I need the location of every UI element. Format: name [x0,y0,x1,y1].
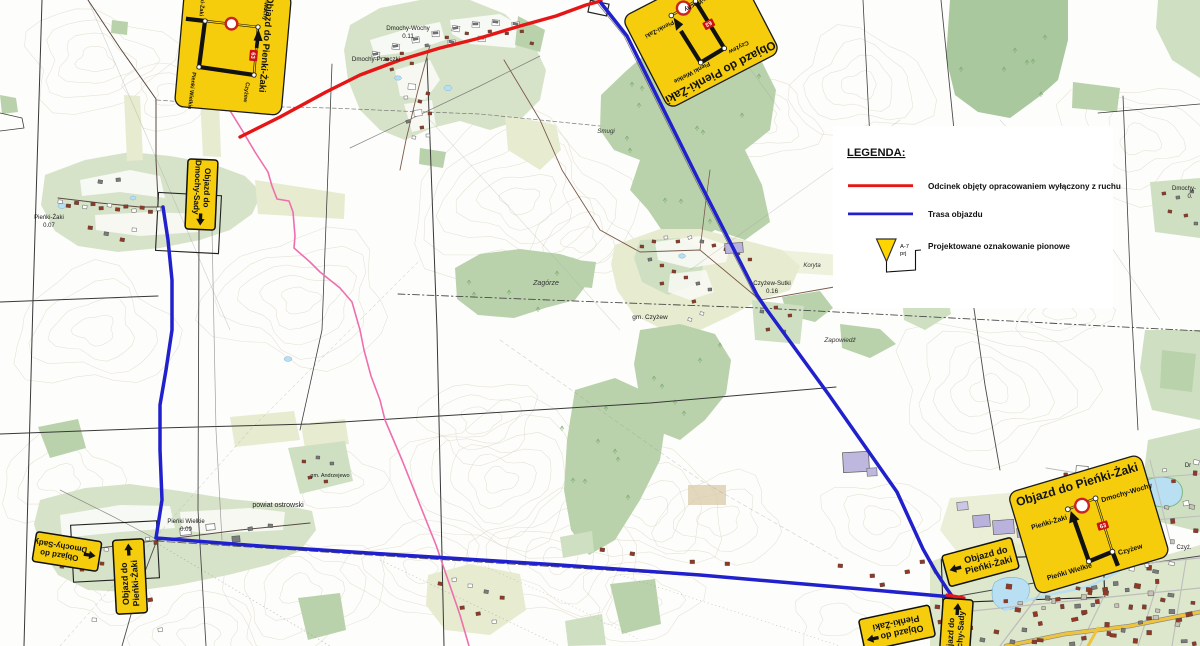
svg-text:Zapowiedź: Zapowiedź [823,337,856,344]
svg-text:Dmochy-Wochy: Dmochy-Wochy [386,25,430,32]
svg-text:Projektowane oznakowanie piono: Projektowane oznakowanie pionowe [928,242,1070,251]
svg-text:gm. Czyżew: gm. Czyżew [632,314,668,321]
svg-text:A-7: A-7 [900,244,909,250]
svg-text:Czyżew-Sutki: Czyżew-Sutki [753,280,790,287]
svg-text:Zagórze: Zagórze [532,280,559,287]
svg-text:0.16: 0.16 [766,288,779,295]
svg-text:Dr: Dr [1185,463,1191,469]
svg-text:0.09: 0.09 [180,527,192,533]
svg-text:Koryta: Koryta [803,263,821,269]
svg-text:prj: prj [900,251,906,257]
svg-text:0.: 0. [1187,194,1192,200]
svg-text:0.11: 0.11 [402,33,414,40]
svg-text:Trasa objazdu: Trasa objazdu [928,210,983,219]
svg-text:powiat ostrowski: powiat ostrowski [252,502,304,509]
svg-text:Czyż.: Czyż. [1177,545,1192,551]
svg-text:0.07: 0.07 [43,223,55,229]
svg-text:Pieńki Wielkie: Pieńki Wielkie [167,519,205,525]
svg-text:Dmochy-: Dmochy- [1172,186,1196,192]
svg-text:LEGENDA:: LEGENDA: [847,147,905,159]
svg-text:Odcinek objęty opracowaniem wy: Odcinek objęty opracowaniem wyłączony z … [928,182,1121,191]
svg-text:Pieńki-Żaki: Pieńki-Żaki [34,214,64,221]
svg-text:Dmochy-Przeczki: Dmochy-Przeczki [352,56,400,63]
svg-text:Smugi: Smugi [597,128,615,135]
svg-text:gm. Andrzejewo: gm. Andrzejewo [310,473,349,479]
